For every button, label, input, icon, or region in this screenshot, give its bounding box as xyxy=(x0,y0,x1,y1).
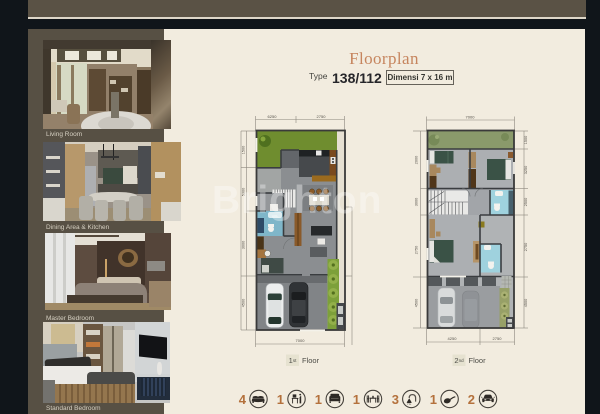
svg-text:1: 1 xyxy=(315,392,322,407)
svg-text:2750: 2750 xyxy=(493,336,503,341)
svg-text:4500: 4500 xyxy=(242,299,246,307)
svg-text:2: 2 xyxy=(468,392,475,407)
svg-text:3000: 3000 xyxy=(415,198,419,206)
svg-text:2000: 2000 xyxy=(415,156,419,164)
svg-text:7000: 7000 xyxy=(466,115,476,120)
svg-text:1: 1 xyxy=(353,392,360,407)
svg-text:6250: 6250 xyxy=(268,114,278,119)
svg-text:4500: 4500 xyxy=(415,299,419,307)
svg-text:4500: 4500 xyxy=(524,299,528,307)
svg-text:3000: 3000 xyxy=(242,241,246,249)
svg-text:2500: 2500 xyxy=(524,198,528,206)
svg-text:3250: 3250 xyxy=(524,166,528,174)
svg-text:7000: 7000 xyxy=(296,338,306,343)
svg-text:2750: 2750 xyxy=(317,114,327,119)
svg-text:Floor: Floor xyxy=(302,356,320,365)
svg-text:Floor: Floor xyxy=(469,356,487,365)
svg-text:1500: 1500 xyxy=(242,146,246,154)
svg-text:2750: 2750 xyxy=(524,243,528,251)
svg-text:1500: 1500 xyxy=(524,136,528,144)
svg-text:1: 1 xyxy=(277,392,284,407)
svg-text:3: 3 xyxy=(392,392,399,407)
svg-text:4: 4 xyxy=(239,392,247,407)
svg-text:4250: 4250 xyxy=(448,336,458,341)
svg-text:2750: 2750 xyxy=(415,246,419,254)
svg-text:1: 1 xyxy=(430,392,437,407)
